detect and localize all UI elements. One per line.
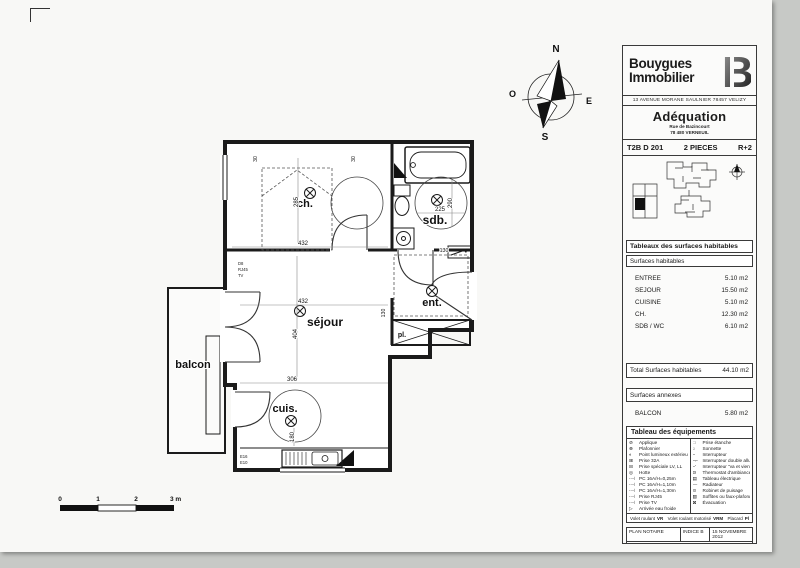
outlet-tag: E10 bbox=[240, 460, 248, 465]
equipment-legend-title: Tableau des équipements bbox=[627, 427, 752, 439]
outlet-tag: TV bbox=[238, 273, 244, 278]
dim-sejour-bottom: 306 bbox=[287, 377, 298, 383]
scale-tick: 1 bbox=[96, 496, 100, 503]
dim-hall-1: 130 bbox=[440, 248, 449, 254]
surfaces-total-label: Total Surfaces habitables bbox=[630, 367, 701, 374]
unit-reference-row: T2B D 201 2 PIECES R+2 bbox=[623, 140, 756, 156]
compass-north-label: N bbox=[552, 44, 559, 55]
nota-text: NOTA: En fonction des nécessités techniq… bbox=[627, 542, 752, 544]
dim-sejour-width: 432 bbox=[298, 299, 309, 305]
annex-surface-row: BALCON 5.80 m2 bbox=[635, 410, 748, 417]
brand-name: Bouygues Immobilier bbox=[629, 57, 694, 84]
abbreviation: PlacardPl bbox=[727, 516, 749, 521]
compass-east-label: E bbox=[586, 96, 592, 106]
outlet-tag: D8 bbox=[238, 261, 244, 266]
dim-sdb-height: 290 bbox=[448, 197, 454, 208]
dim-ch-height: 285 bbox=[294, 196, 300, 207]
surface-value: 5.10 m2 bbox=[725, 273, 748, 285]
surface-label: ENTREE bbox=[635, 273, 661, 285]
surfaces-table-subtitle: Surfaces habitables bbox=[626, 255, 753, 267]
compass-rose-icon: N O E S bbox=[509, 44, 592, 143]
surface-label: SEJOUR bbox=[635, 285, 661, 297]
unit-floor: R+2 bbox=[738, 143, 752, 152]
scale-tick: 0 bbox=[58, 496, 62, 503]
room-label-sejour: séjour bbox=[307, 315, 343, 329]
room-label-ent: ent. bbox=[422, 297, 442, 309]
scale-tick: 2 bbox=[134, 496, 138, 503]
unit-rooms: 2 PIECES bbox=[684, 143, 718, 152]
abbreviation: Volet roulantVR bbox=[630, 516, 663, 521]
document-info-row: PLAN NOTAIRE INDICE B 15 NOVEMBRE 2012 bbox=[627, 528, 752, 542]
abbreviations-row: Volet roulantVR Volet roulant motoriséVR… bbox=[627, 513, 752, 522]
bouygues-b-logo-icon: B bbox=[721, 50, 751, 92]
surface-value: 12.30 m2 bbox=[721, 309, 748, 321]
dim-ch-width: 432 bbox=[298, 241, 309, 247]
dim-hall-2: 130 bbox=[381, 309, 387, 318]
dim-sdb-width: 225 bbox=[435, 207, 446, 213]
equipment-legend-right-column: □Prise étanche ○Sonnette ⌐Interrupteur ⌐… bbox=[690, 439, 753, 513]
outlet-tag: RJ45 bbox=[238, 267, 248, 272]
scale-tick: 3 m bbox=[170, 496, 181, 503]
surface-row: SDB / WC 6.10 m2 bbox=[635, 321, 748, 333]
drain-icon: ⊠ bbox=[693, 500, 703, 506]
document-date: 15 NOVEMBRE 2012 bbox=[710, 528, 752, 541]
room-label-pl: pl. bbox=[398, 332, 406, 339]
unit-ref: T2B D 201 bbox=[627, 143, 663, 152]
brand-logo-block: Bouygues Immobilier B bbox=[623, 46, 756, 96]
project-address-line2: 78 480 VERNEUIL bbox=[623, 130, 756, 136]
dim-wall-2: 30 bbox=[351, 156, 357, 162]
surfaces-table: ENTREE 5.10 m2 SEJOUR 15.50 m2 CUISINE 5… bbox=[635, 273, 748, 333]
surface-value: 5.10 m2 bbox=[725, 297, 748, 309]
brand-address: 13 AVENUE MORANE SAULNIER 78457 VELIZY bbox=[623, 96, 756, 106]
compass-west-label: O bbox=[509, 89, 516, 99]
legend-item: ▷Arrivée eau froide bbox=[629, 506, 688, 512]
annex-surface-value: 5.80 m2 bbox=[725, 410, 748, 417]
surfaces-total-value: 44.10 m2 bbox=[722, 367, 749, 374]
key-plan bbox=[623, 156, 756, 240]
title-block: Bouygues Immobilier B 13 AVENUE MORANE S… bbox=[622, 45, 757, 544]
abbreviation: Volet roulant motoriséVRM bbox=[668, 516, 724, 521]
floor-plan-drawing: N O E S bbox=[0, 0, 620, 568]
room-label-balcon: balcon bbox=[175, 359, 211, 371]
outlet-tag: E16 bbox=[240, 454, 248, 459]
dim-wall-1: 30 bbox=[253, 156, 259, 162]
scanned-floor-plan-page: { "plan": { "rooms": { "ch": "ch.", "sdb… bbox=[0, 0, 800, 568]
dim-cuis-height: 180 bbox=[290, 431, 296, 442]
footer-block: PLAN NOTAIRE INDICE B 15 NOVEMBRE 2012 N… bbox=[626, 527, 753, 544]
surface-value: 6.10 m2 bbox=[725, 321, 748, 333]
surface-value: 15.50 m2 bbox=[721, 285, 748, 297]
surface-row: ENTREE 5.10 m2 bbox=[635, 273, 748, 285]
svg-text:B: B bbox=[722, 50, 751, 92]
surface-label: SDB / WC bbox=[635, 321, 664, 333]
dim-sejour-height: 404 bbox=[293, 328, 299, 339]
room-label-cuis: cuis. bbox=[272, 403, 297, 415]
surface-label: CUISINE bbox=[635, 297, 661, 309]
project-block: Adéquation Rue de Bazincourt 78 480 VERN… bbox=[623, 106, 756, 140]
document-indice: INDICE B bbox=[681, 528, 710, 541]
brand-name-line1: Bouygues bbox=[629, 57, 694, 71]
room-label-sdb: sdb. bbox=[423, 213, 448, 227]
surface-row: CH. 12.30 m2 bbox=[635, 309, 748, 321]
annex-surfaces-title: Surfaces annexes bbox=[626, 388, 753, 402]
document-type: PLAN NOTAIRE bbox=[627, 528, 681, 541]
surface-label: CH. bbox=[635, 309, 646, 321]
surfaces-total-row: Total Surfaces habitables 44.10 m2 bbox=[626, 363, 753, 378]
annex-surface-label: BALCON bbox=[635, 410, 661, 417]
surfaces-table-title: Tableaux des surfaces habitables bbox=[626, 240, 753, 253]
project-name: Adéquation bbox=[623, 109, 756, 124]
scale-bar: 0 1 2 3 m bbox=[58, 496, 181, 511]
cold-water-icon: ▷ bbox=[629, 506, 639, 512]
brand-name-line2: Immobilier bbox=[629, 71, 694, 85]
legend-item: ⊠Évacuation bbox=[693, 500, 751, 506]
equipment-legend: Tableau des équipements ⊘Applique ⊗Plafo… bbox=[626, 426, 753, 523]
equipment-legend-left-column: ⊘Applique ⊗Plafonnier ◐Point lumineux ex… bbox=[627, 439, 690, 513]
compass-south-label: S bbox=[542, 132, 549, 143]
surface-row: SEJOUR 15.50 m2 bbox=[635, 285, 748, 297]
surface-row: CUISINE 5.10 m2 bbox=[635, 297, 748, 309]
